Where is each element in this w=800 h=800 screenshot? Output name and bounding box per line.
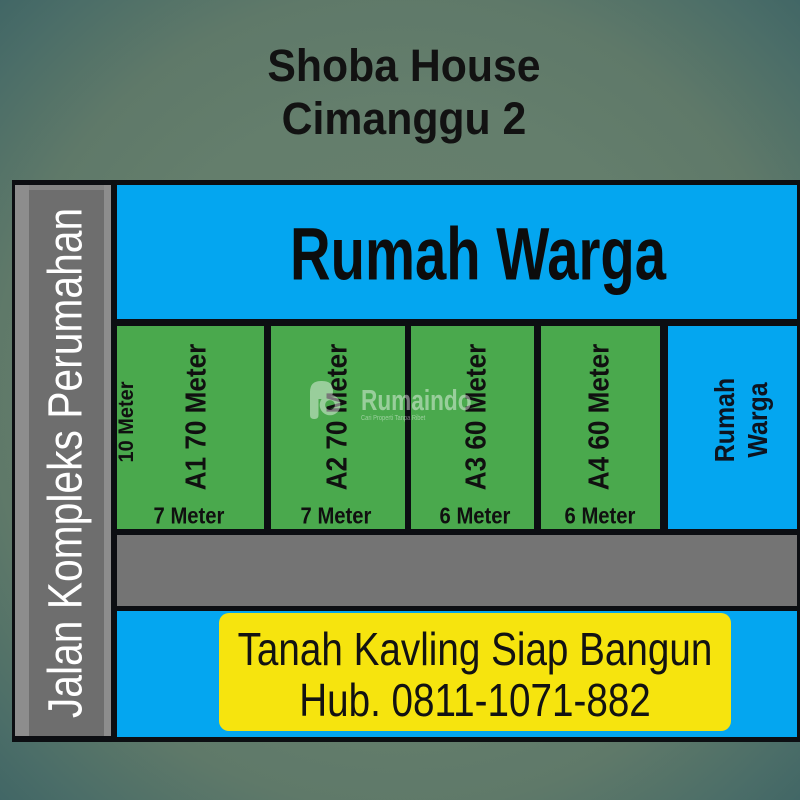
svg-text:Rumaindo: Rumaindo <box>361 383 472 416</box>
svg-text:Cari Properti Tanpa Ribet: Cari Properti Tanpa Ribet <box>361 415 425 423</box>
